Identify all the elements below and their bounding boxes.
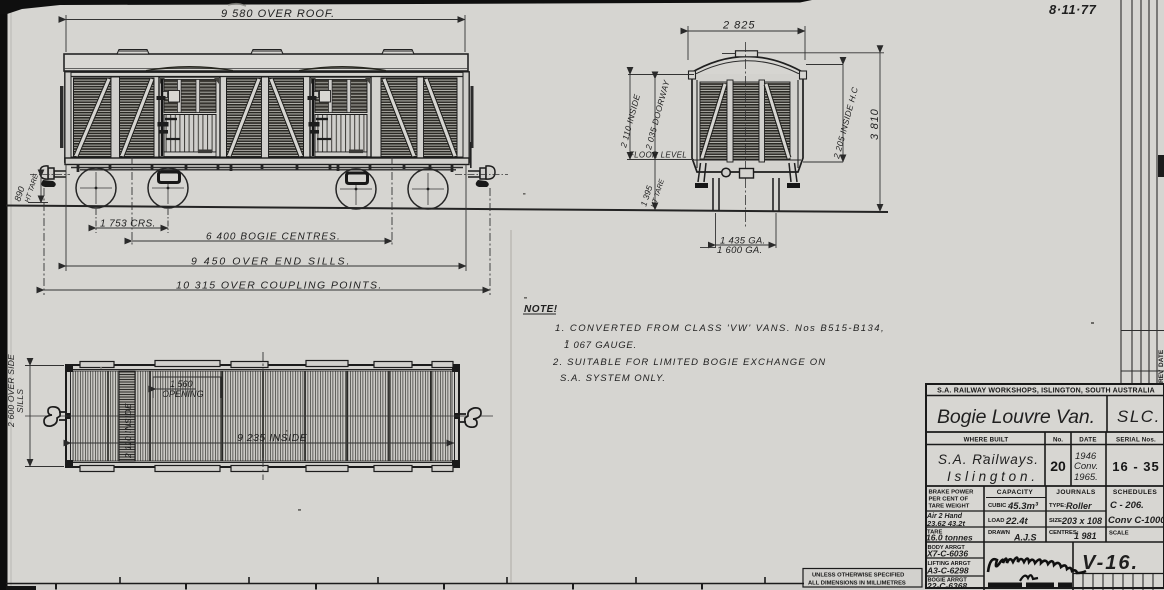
svg-text:Conv.: Conv. — [1074, 461, 1098, 472]
svg-text:8·11·77: 8·11·77 — [1049, 2, 1097, 17]
svg-text:9 235 INSIDE: 9 235 INSIDE — [237, 432, 308, 444]
svg-text:9 580 OVER ROOF.: 9 580 OVER ROOF. — [221, 8, 335, 20]
svg-text:BRAKE POWER: BRAKE POWER — [929, 490, 975, 496]
svg-text:WHERE BUILT: WHERE BUILT — [964, 437, 1009, 444]
svg-text:C - 206.: C - 206. — [1110, 500, 1144, 511]
svg-text:X7-C-6036: X7-C-6036 — [926, 549, 968, 559]
svg-text:S.A. RAILWAY WORKSHOPS, ISLING: S.A. RAILWAY WORKSHOPS, ISLINGTON, SOUTH… — [937, 388, 1155, 395]
svg-text:UNLESS OTHERWISE SPECIFIED: UNLESS OTHERWISE SPECIFIED — [812, 573, 904, 579]
svg-text:16.0 tonnes: 16.0 tonnes — [926, 533, 973, 543]
svg-text:SERIAL Nos.: SERIAL Nos. — [1116, 437, 1156, 444]
svg-text:S.A. Railways.: S.A. Railways. — [938, 452, 1038, 467]
svg-text:TYPE:: TYPE: — [1049, 503, 1066, 509]
svg-text:1 981: 1 981 — [1074, 531, 1097, 541]
svg-text:2 825: 2 825 — [722, 20, 756, 32]
svg-text:CUBIC :: CUBIC : — [988, 503, 1010, 509]
svg-text:Bogie Louvre Van.: Bogie Louvre Van. — [937, 406, 1097, 428]
svg-text:45.3m³: 45.3m³ — [1007, 501, 1039, 512]
svg-text:TARE WEIGHT: TARE WEIGHT — [929, 504, 970, 510]
svg-text:SLC.: SLC. — [1117, 407, 1161, 426]
svg-text:A.J.S: A.J.S — [1013, 533, 1037, 543]
svg-text:1. CONVERTED FROM CLASS 'VW' V: 1. CONVERTED FROM CLASS 'VW' VANS. Nos B… — [555, 323, 885, 334]
svg-text:FLOOR LEVEL: FLOOR LEVEL — [629, 151, 687, 160]
svg-text:ALL DIMENSIONS IN MILLIMETRES: ALL DIMENSIONS IN MILLIMETRES — [808, 581, 906, 587]
svg-text:S.A. SYSTEM ONLY.: S.A. SYSTEM ONLY. — [560, 373, 666, 384]
svg-text:SCALE: SCALE — [1109, 531, 1129, 537]
svg-text:Islington.: Islington. — [947, 469, 1035, 484]
svg-text:OPENING: OPENING — [162, 389, 204, 399]
svg-text:SCHEDULES: SCHEDULES — [1113, 489, 1157, 496]
svg-text:10 315 OVER COUPLING POINTS.: 10 315 OVER COUPLING POINTS. — [176, 280, 383, 292]
svg-text:Conv C-1000: Conv C-1000 — [1108, 515, 1164, 526]
svg-text:NOTE!: NOTE! — [524, 304, 558, 315]
svg-text:16 - 35: 16 - 35 — [1112, 459, 1159, 474]
svg-text:23.62 43.2t: 23.62 43.2t — [926, 519, 965, 528]
svg-text:1965.: 1965. — [1074, 472, 1098, 483]
svg-text:REV: REV — [1158, 369, 1164, 383]
svg-text:A3-C-6298: A3-C-6298 — [926, 566, 969, 576]
svg-text:2 110 INSIDE: 2 110 INSIDE — [123, 403, 133, 459]
svg-text:1 600 GA.: 1 600 GA. — [717, 245, 762, 256]
svg-text:2. SUITABLE FOR LIMITED BOGI: 2. SUITABLE FOR LIMITED BOGIE EXCHANGE O… — [552, 357, 826, 368]
svg-text:Roller: Roller — [1066, 501, 1092, 511]
svg-text:6 400 BOGIE CENTRES.: 6 400 BOGIE CENTRES. — [206, 232, 341, 243]
svg-text:1 067 GAUGE.: 1 067 GAUGE. — [564, 340, 637, 351]
svg-text:22-C-6368: 22-C-6368 — [926, 581, 967, 590]
svg-text:CAPACITY: CAPACITY — [997, 489, 1034, 496]
svg-text:DATE: DATE — [1158, 349, 1164, 367]
svg-text:DRAWN: DRAWN — [988, 530, 1010, 536]
svg-text:DATE: DATE — [1079, 437, 1097, 444]
svg-text:20: 20 — [1050, 458, 1066, 474]
svg-text:203 x 108: 203 x 108 — [1061, 516, 1102, 526]
svg-text:22.4t: 22.4t — [1005, 516, 1028, 527]
svg-text:3 810: 3 810 — [869, 108, 881, 140]
svg-text:JOURNALS: JOURNALS — [1056, 489, 1096, 496]
svg-text:SILLS: SILLS — [15, 389, 25, 413]
svg-text:1 753 CRS.: 1 753 CRS. — [100, 219, 156, 230]
svg-text:No.: No. — [1053, 437, 1063, 444]
svg-text:PER CENT OF: PER CENT OF — [929, 497, 969, 503]
svg-text:V-16.: V-16. — [1082, 552, 1139, 574]
svg-text:9 450 OVER END SILLS.: 9 450 OVER END SILLS. — [191, 256, 351, 268]
svg-text:1 560: 1 560 — [170, 379, 193, 389]
